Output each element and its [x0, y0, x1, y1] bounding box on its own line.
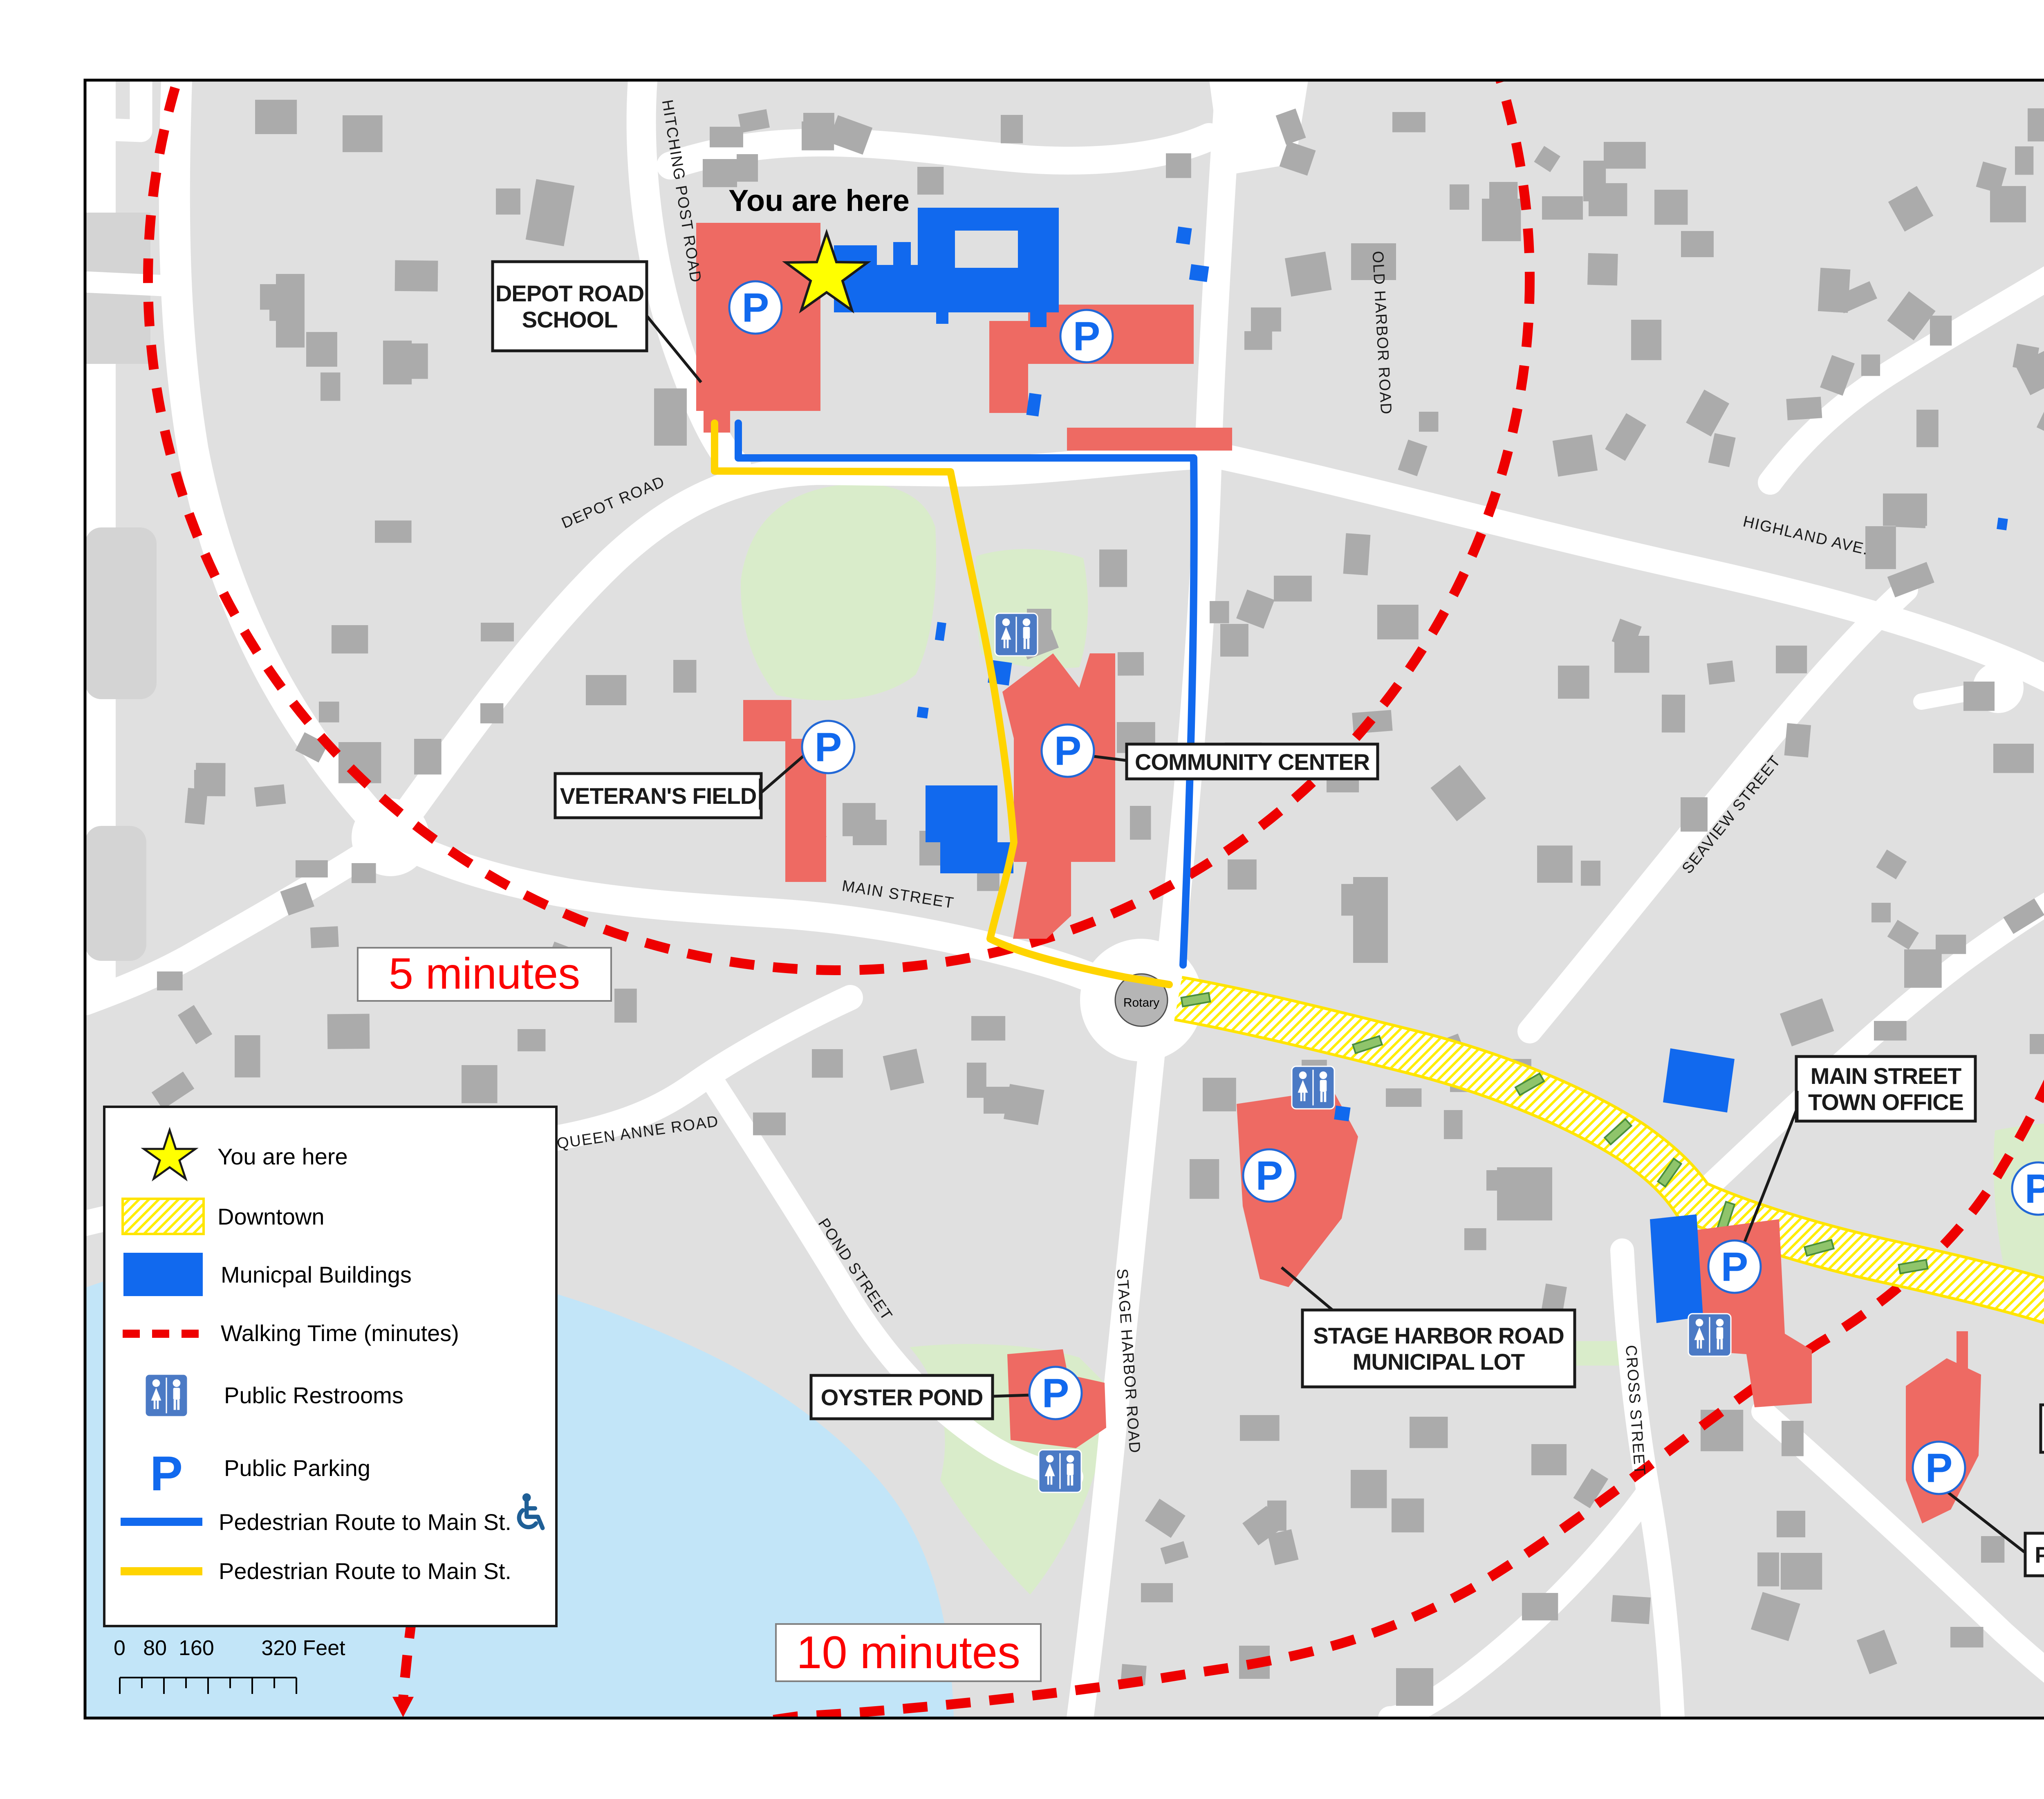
svg-text:MAIN STREET: MAIN STREET: [1811, 1063, 1961, 1089]
svg-text:P: P: [742, 285, 769, 331]
svg-text:SCHOOL: SCHOOL: [522, 307, 618, 332]
svg-text:OYSTER POND: OYSTER POND: [821, 1384, 983, 1410]
svg-text:PUBLIC PARKING LOT: PUBLIC PARKING LOT: [2035, 1542, 2044, 1568]
svg-text:Pedestrian Route to Main St.: Pedestrian Route to Main St.: [219, 1509, 511, 1535]
svg-text:STAGE HARBOR ROAD: STAGE HARBOR ROAD: [1313, 1323, 1564, 1348]
svg-text:P: P: [1925, 1445, 1953, 1491]
svg-text:TOWN OFFICE: TOWN OFFICE: [1808, 1089, 1963, 1115]
svg-text:Walking Time (minutes): Walking Time (minutes): [221, 1320, 459, 1346]
svg-text:P: P: [1042, 1371, 1069, 1416]
svg-text:P: P: [150, 1446, 183, 1501]
svg-text:P: P: [1721, 1244, 1748, 1290]
svg-text:DEPOT ROAD: DEPOT ROAD: [495, 280, 644, 306]
svg-text:5 minutes: 5 minutes: [389, 949, 580, 998]
svg-text:Rotary: Rotary: [1123, 996, 1159, 1009]
svg-text:Downtown: Downtown: [217, 1204, 324, 1229]
svg-text:P: P: [2025, 1166, 2044, 1212]
svg-text:P: P: [1073, 314, 1100, 359]
svg-text:You are here: You are here: [217, 1144, 348, 1169]
svg-text:Pedestrian Route to Main St.: Pedestrian Route to Main St.: [219, 1558, 511, 1584]
svg-text:VETERAN'S FIELD: VETERAN'S FIELD: [560, 783, 757, 809]
svg-text:You are here: You are here: [728, 184, 910, 218]
svg-text:P: P: [815, 725, 842, 770]
svg-text:COMMUNITY CENTER: COMMUNITY CENTER: [1135, 749, 1370, 775]
svg-text:Public Parking: Public Parking: [224, 1455, 370, 1481]
svg-text:0 80 160 320 Feet: 0 80 160 320 Feet: [114, 1636, 345, 1660]
svg-text:Public Restrooms: Public Restrooms: [224, 1382, 403, 1408]
svg-text:Municpal Buildings: Municpal Buildings: [221, 1262, 412, 1288]
svg-text:10 minutes: 10 minutes: [796, 1627, 1020, 1678]
svg-text:MUNICIPAL LOT: MUNICIPAL LOT: [1353, 1349, 1525, 1375]
svg-text:P: P: [1054, 728, 1082, 774]
svg-text:P: P: [1256, 1153, 1283, 1199]
